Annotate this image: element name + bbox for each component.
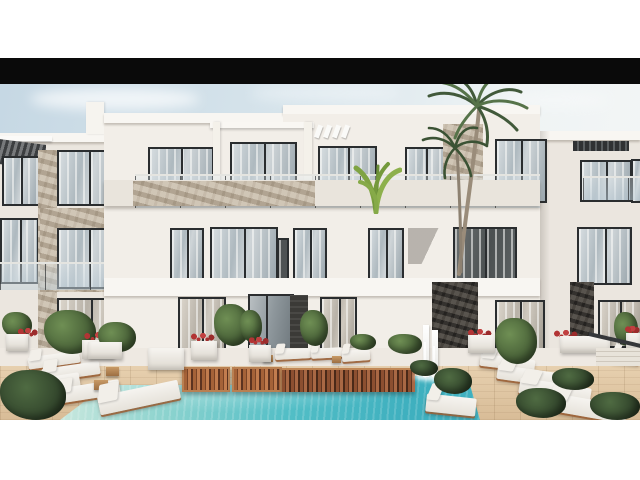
- window: [293, 228, 327, 282]
- white-planter: [6, 334, 28, 351]
- roof-pillar: [86, 102, 104, 134]
- window: [170, 228, 204, 282]
- balcony-beam: [210, 122, 314, 128]
- wood-slat-bridge: [282, 368, 415, 392]
- side-table: [106, 367, 119, 376]
- window: [368, 228, 404, 282]
- white-planter: [468, 335, 495, 353]
- stairs: [596, 348, 640, 366]
- wood-slat-platform: [232, 367, 282, 392]
- shrub: [552, 368, 594, 390]
- white-daybed: [148, 348, 184, 370]
- banana-plant: [348, 146, 402, 214]
- page-background: [0, 0, 640, 480]
- right-wing-parapet: [540, 131, 640, 140]
- stone-balcony-slab: [133, 181, 315, 206]
- property-render-photo: [0, 58, 640, 420]
- wood-slat-platform: [182, 367, 230, 392]
- side-table: [332, 356, 341, 363]
- red-flowers: [247, 337, 271, 345]
- white-planter: [249, 345, 271, 362]
- plant: [350, 334, 376, 350]
- cloud: [250, 84, 400, 102]
- palm-tree: [415, 84, 545, 289]
- letterbox-bar: [0, 58, 640, 84]
- window: [2, 156, 40, 206]
- lounger: [275, 348, 311, 360]
- shrub: [434, 368, 472, 394]
- plant: [300, 310, 328, 346]
- white-daybed: [88, 342, 122, 359]
- cloud: [30, 88, 200, 110]
- white-planter: [191, 341, 217, 360]
- shrub: [516, 388, 566, 418]
- window: [210, 227, 278, 284]
- balcony-glass-railing: [583, 176, 640, 200]
- shrub: [590, 392, 640, 420]
- plant: [388, 334, 422, 354]
- window: [577, 227, 632, 285]
- shrub: [410, 360, 438, 376]
- plant: [495, 318, 537, 364]
- render-content: [0, 84, 640, 420]
- lounger: [342, 349, 371, 362]
- pergola-dark-right: [573, 141, 629, 151]
